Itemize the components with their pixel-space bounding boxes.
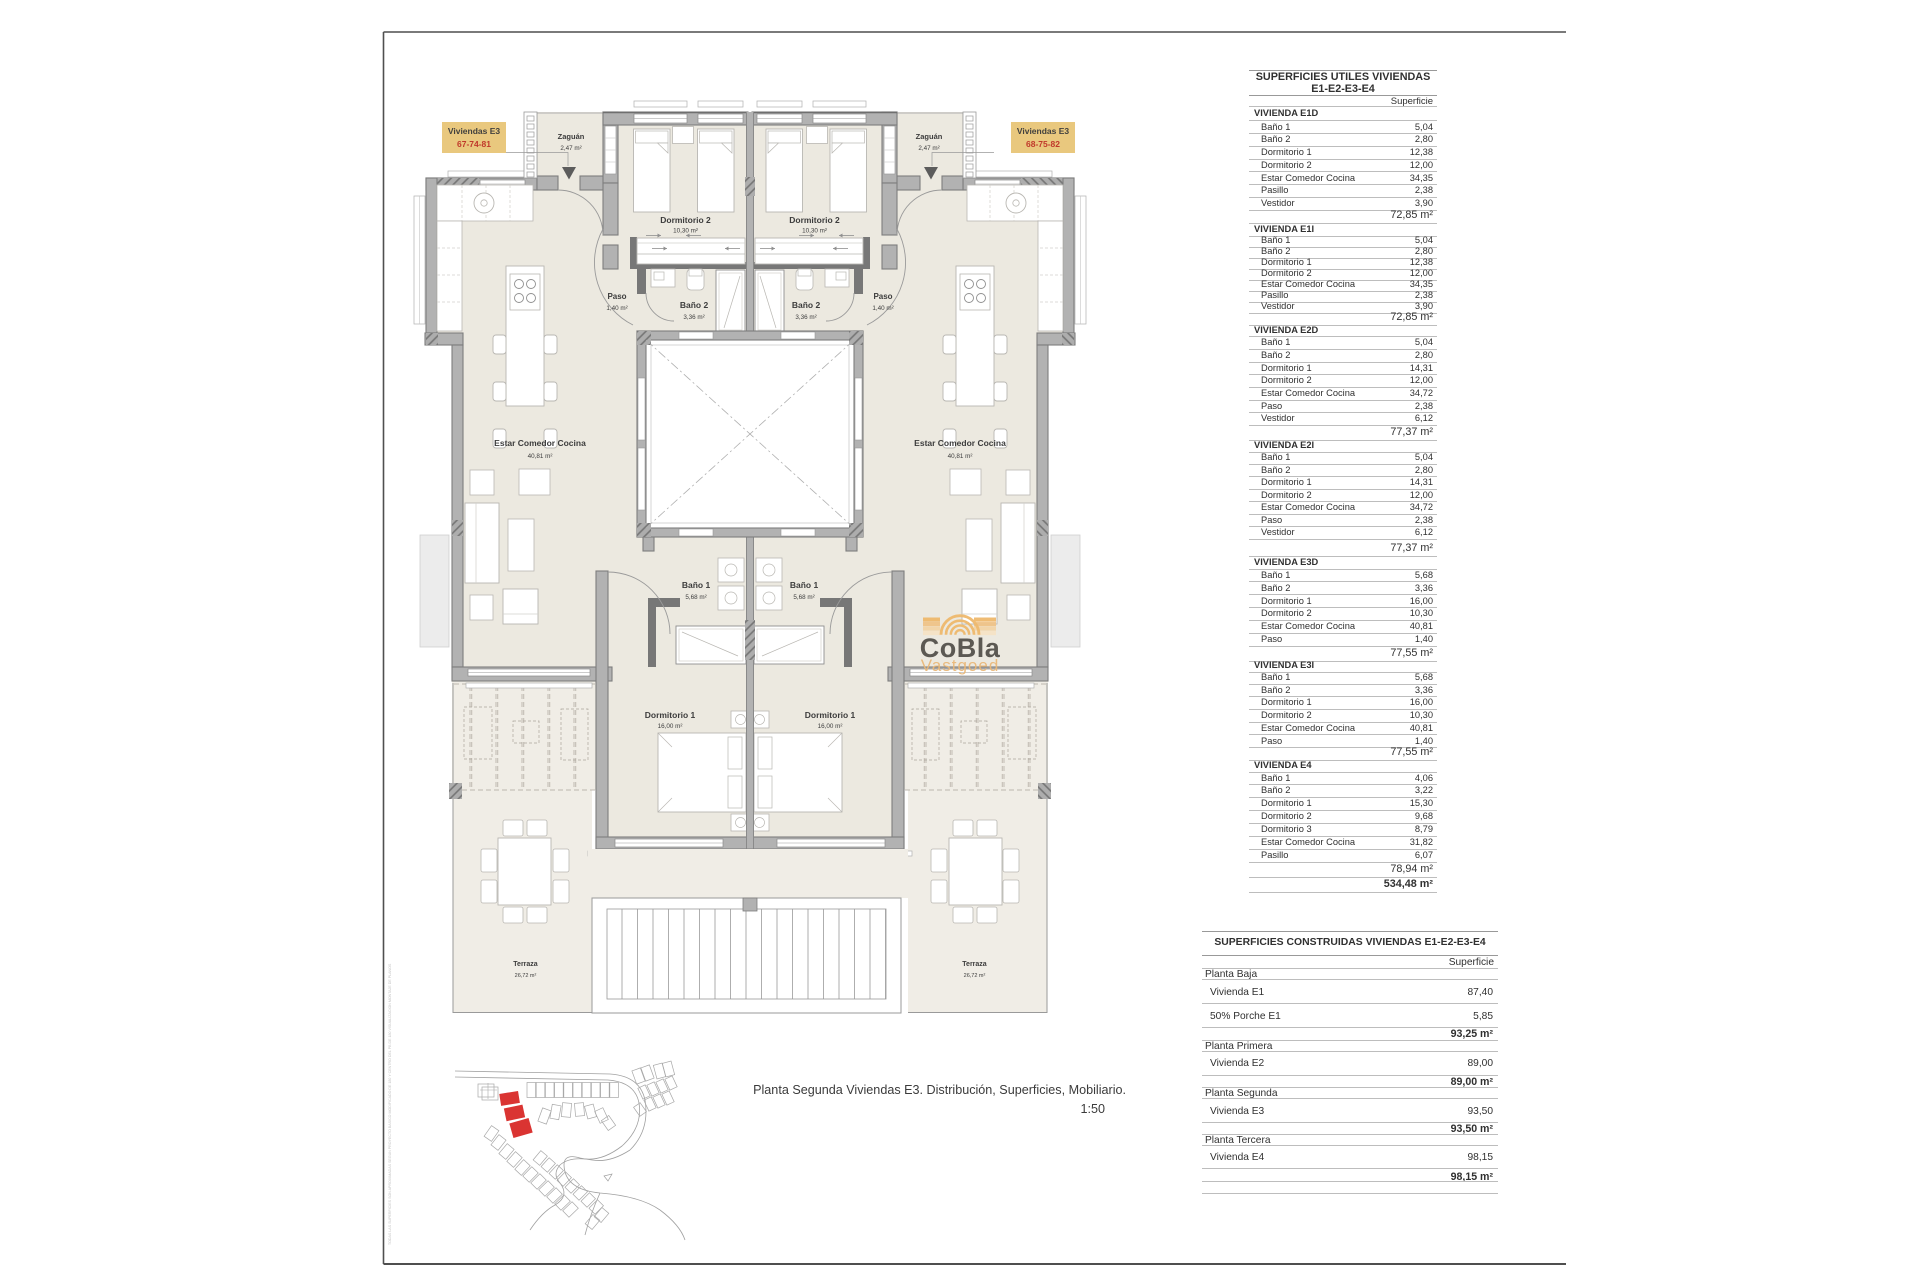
svg-text:Dormitorio 1: Dormitorio 1 bbox=[645, 710, 696, 720]
svg-text:10,30 m²: 10,30 m² bbox=[802, 228, 827, 235]
svg-text:26,72 m²: 26,72 m² bbox=[515, 973, 537, 979]
svg-text:16,00 m²: 16,00 m² bbox=[818, 723, 843, 730]
svg-text:1,40 m²: 1,40 m² bbox=[606, 305, 627, 312]
svg-text:26,72 m²: 26,72 m² bbox=[964, 973, 986, 979]
svg-text:Dormitorio 2: Dormitorio 2 bbox=[660, 215, 711, 225]
svg-text:5,68 m²: 5,68 m² bbox=[793, 594, 814, 601]
svg-text:Zaguán: Zaguán bbox=[558, 132, 585, 141]
svg-text:Vastgoed: Vastgoed bbox=[921, 656, 1000, 675]
svg-text:3,36 m²: 3,36 m² bbox=[795, 314, 816, 321]
svg-text:Baño 2: Baño 2 bbox=[680, 300, 709, 310]
svg-text:Zaguán: Zaguán bbox=[916, 132, 943, 141]
svg-text:1:50: 1:50 bbox=[1080, 1102, 1105, 1116]
svg-text:2,47 m²: 2,47 m² bbox=[560, 145, 581, 152]
svg-text:5,68 m²: 5,68 m² bbox=[685, 594, 706, 601]
svg-text:Terraza: Terraza bbox=[962, 961, 986, 968]
svg-text:68-75-82: 68-75-82 bbox=[1026, 139, 1060, 149]
svg-text:Terraza: Terraza bbox=[513, 961, 537, 968]
svg-text:16,00 m²: 16,00 m² bbox=[658, 723, 683, 730]
svg-text:67-74-81: 67-74-81 bbox=[457, 139, 491, 149]
svg-text:TODAS LAS SUPERFICIES SON APRO: TODAS LAS SUPERFICIES SON APROXIMADAS SE… bbox=[388, 963, 392, 1245]
svg-text:Dormitorio 2: Dormitorio 2 bbox=[789, 215, 840, 225]
svg-text:Estar Comedor Cocina: Estar Comedor Cocina bbox=[914, 438, 1006, 448]
svg-text:1,40 m²: 1,40 m² bbox=[872, 305, 893, 312]
svg-text:2,47 m²: 2,47 m² bbox=[918, 145, 939, 152]
svg-text:Dormitorio 1: Dormitorio 1 bbox=[805, 710, 856, 720]
svg-text:Baño 2: Baño 2 bbox=[792, 300, 821, 310]
svg-text:Baño 1: Baño 1 bbox=[682, 580, 711, 590]
svg-text:40,81 m²: 40,81 m² bbox=[948, 453, 973, 460]
svg-text:Viviendas E3: Viviendas E3 bbox=[448, 126, 501, 136]
svg-text:40,81 m²: 40,81 m² bbox=[528, 453, 553, 460]
svg-text:10,30 m²: 10,30 m² bbox=[673, 228, 698, 235]
svg-text:Estar Comedor Cocina: Estar Comedor Cocina bbox=[494, 438, 586, 448]
svg-text:Baño 1: Baño 1 bbox=[790, 580, 819, 590]
svg-text:3,36 m²: 3,36 m² bbox=[683, 314, 704, 321]
svg-text:Planta Segunda Viviendas E3. D: Planta Segunda Viviendas E3. Distribució… bbox=[753, 1083, 1126, 1097]
svg-text:Viviendas E3: Viviendas E3 bbox=[1017, 126, 1070, 136]
svg-text:Paso: Paso bbox=[607, 292, 626, 301]
svg-text:Paso: Paso bbox=[873, 292, 892, 301]
